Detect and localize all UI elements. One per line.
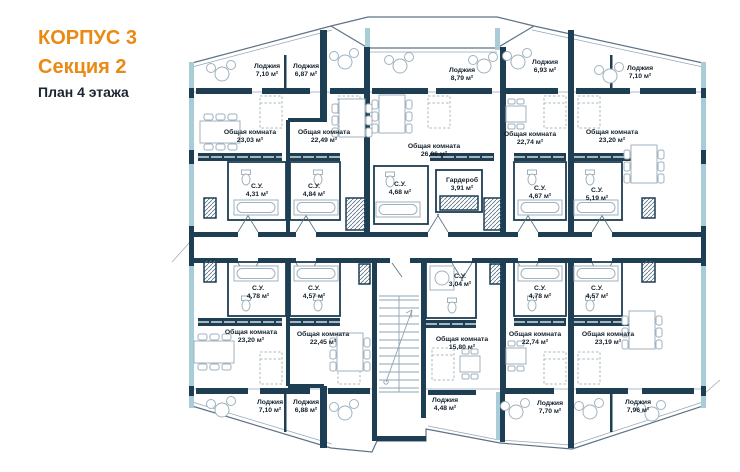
room-label-living: Общая комната23,20 м² — [586, 128, 639, 144]
bathtub — [574, 200, 618, 215]
bathtub — [574, 266, 618, 281]
room-label-living: Общая комната22,74 м² — [504, 130, 557, 146]
loggia-table-set — [575, 399, 604, 420]
room-label-loggia: Лоджия7,10 м² — [627, 65, 653, 80]
room-label-loggia: Лоджия6,88 м² — [293, 399, 319, 414]
room-label-loggia: Лоджия4,48 м² — [432, 397, 458, 412]
dining-table — [460, 349, 480, 379]
dining-table — [624, 145, 664, 183]
room-label-bathroom: С.У.4,57 м² — [586, 285, 609, 300]
bed — [578, 352, 600, 384]
duct-shaft — [490, 264, 502, 284]
room-label-bathroom: С.У.4,67 м² — [529, 185, 552, 200]
room-label-loggia: Лоджия7,96 м² — [625, 399, 651, 414]
duct-shaft — [642, 260, 655, 282]
bathtub — [234, 266, 278, 281]
duct-shaft — [642, 198, 655, 218]
elevator-shaft — [346, 198, 366, 230]
bathtub — [376, 202, 420, 217]
bed — [432, 348, 454, 380]
room-label-loggia: Лоджия6,87 м² — [293, 63, 319, 78]
bed — [544, 96, 566, 128]
loggia-table-set — [330, 400, 359, 421]
bathtub — [234, 200, 278, 215]
dark-walls — [189, 30, 706, 448]
floor-plan-drawing: Лоджия7,10 м² Лоджия6,87 м² Лоджия8,79 м… — [0, 0, 740, 472]
loggia-table-set — [595, 63, 624, 84]
room-label-wardrobe: Гардероб3,91 м² — [446, 176, 478, 192]
dining-table — [506, 99, 526, 129]
toilet — [448, 298, 457, 313]
loggia-table-set — [385, 53, 414, 74]
dining-table — [372, 95, 412, 133]
toilet — [528, 170, 537, 185]
loggia-table-set — [503, 49, 532, 70]
room-label-bathroom: С.У.4,78 м² — [247, 285, 270, 300]
duct-shaft — [204, 260, 216, 282]
toilet — [242, 170, 251, 185]
bed — [544, 352, 566, 384]
bathtub — [294, 200, 338, 215]
room-label-bathroom: С.У.4,57 м² — [303, 285, 326, 300]
duct-shaft — [359, 264, 370, 284]
floor-plan-page: КОРПУС 3 Секция 2 План 4 этажа — [0, 0, 740, 472]
room-label-bathroom: С.У.4,31 м² — [246, 183, 269, 198]
room-label-loggia: Лоджия7,10 м² — [257, 399, 283, 414]
toilet — [586, 170, 595, 185]
room-label-bathroom: С.У.4,84 м² — [303, 183, 326, 198]
bed — [428, 96, 450, 128]
room-label-loggia: Лоджия8,79 м² — [449, 67, 475, 82]
room-label-loggia: Лоджия7,70 м² — [537, 400, 563, 415]
loggia-table-set — [207, 61, 236, 82]
dining-table — [622, 311, 662, 349]
bathtub — [294, 266, 338, 281]
elevator-shaft — [484, 198, 502, 230]
room-label-loggia: Лоджия7,10 м² — [254, 63, 280, 78]
bathtub — [518, 266, 562, 281]
room-label-loggia: Лоджия6,93 м² — [532, 59, 558, 74]
room-label-bathroom: С.У.4,78 м² — [529, 285, 552, 300]
duct-shaft — [204, 198, 216, 218]
bed — [578, 96, 600, 128]
staircase — [379, 296, 419, 392]
bed — [260, 352, 282, 384]
bathtub — [518, 200, 562, 215]
loggia-table-set — [330, 49, 359, 70]
dining-table — [194, 334, 234, 370]
bed — [260, 96, 282, 128]
room-label-bathroom: С.У.5,19 м² — [586, 187, 609, 202]
room-label-living: Общая комната15,80 м² — [436, 335, 489, 351]
wardrobe-closet — [440, 196, 478, 210]
